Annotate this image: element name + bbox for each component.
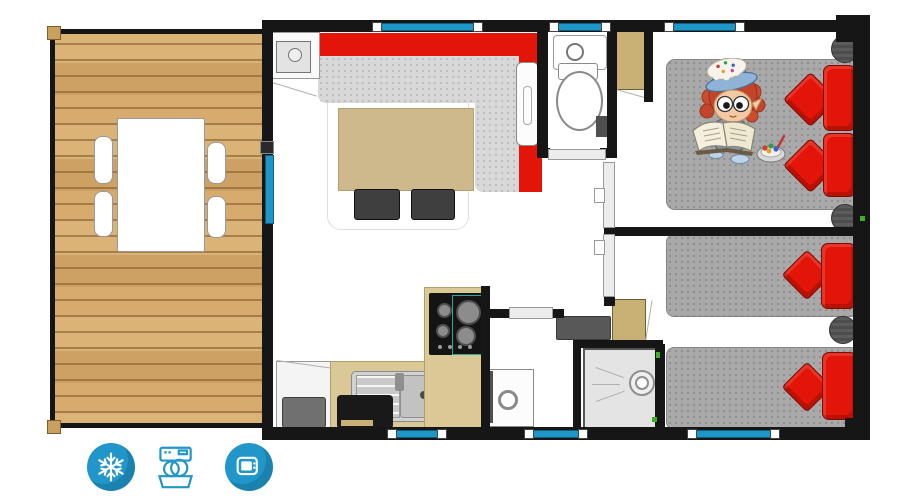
wall-niche-bedroom — [644, 20, 653, 102]
fitting-mark — [652, 417, 657, 422]
wall-right — [853, 20, 870, 440]
door-latch — [260, 141, 274, 154]
dishwasher-icon — [154, 442, 198, 492]
wall-bedroom-divider — [607, 227, 854, 236]
shower-drain-center — [635, 376, 649, 390]
burner — [456, 300, 481, 325]
burner — [437, 303, 452, 318]
pillow — [821, 243, 856, 309]
sink-faucet — [395, 373, 404, 391]
wall-shower-left — [573, 340, 581, 428]
chair — [94, 191, 113, 237]
window — [690, 430, 777, 438]
shower-spray-line — [592, 384, 620, 385]
chair — [207, 142, 226, 184]
floor-plan — [0, 0, 900, 500]
chair — [207, 196, 226, 238]
wall-living-wc — [537, 20, 548, 158]
window — [375, 23, 480, 31]
wall-radiator — [516, 62, 539, 146]
wall-left — [262, 20, 273, 440]
stool — [411, 189, 455, 220]
window — [527, 430, 585, 438]
wc-sliding-door — [548, 149, 606, 160]
corner-sofa-seat — [475, 56, 519, 192]
corner-sofa-back — [318, 33, 542, 56]
wall-corner-top-right — [836, 15, 870, 42]
bathroom-door — [509, 307, 553, 319]
terrace-frame-bottom — [50, 423, 265, 428]
wall-corner-bottom-right — [845, 418, 870, 440]
terrace-post — [47, 26, 61, 40]
chair — [94, 136, 113, 184]
vanity-faucet — [498, 390, 518, 410]
tv-icon — [232, 450, 266, 484]
corner-sofa-seat — [318, 56, 475, 103]
window — [552, 23, 608, 31]
pillow — [823, 65, 856, 131]
snowflake-icon — [94, 450, 128, 484]
coffee-table — [338, 108, 474, 191]
wall-wc-right — [607, 20, 617, 158]
wall-shower-top — [573, 340, 663, 348]
stool — [354, 189, 400, 220]
fitting-mark — [860, 216, 865, 221]
basin-faucet — [566, 43, 584, 61]
terrace-post — [47, 420, 61, 434]
terrace-glass-door — [265, 155, 274, 224]
burner — [436, 324, 450, 338]
cartoon-child-illustration — [683, 58, 789, 170]
door-handle — [594, 240, 605, 255]
cooktop-knobs — [438, 345, 442, 349]
door-handle — [594, 188, 605, 203]
pillow — [822, 352, 857, 420]
terrace-frame-left — [50, 29, 55, 428]
window — [667, 23, 742, 31]
dark-shelf — [556, 316, 611, 340]
terrace-frame-top — [50, 29, 265, 34]
window — [390, 430, 444, 438]
fitting-mark — [656, 352, 660, 358]
pillow — [823, 133, 856, 197]
storage-cabinet — [612, 299, 646, 346]
tv-badge — [225, 443, 273, 491]
radiator-slot — [523, 86, 532, 125]
appliance-tray — [341, 420, 373, 426]
burner — [456, 326, 476, 346]
appliance-dial — [288, 48, 302, 62]
air-conditioning-badge — [87, 443, 135, 491]
shoe — [731, 155, 749, 164]
fridge-front — [282, 397, 326, 428]
dining-table — [117, 118, 205, 252]
wall-kitchen-bath — [481, 286, 490, 428]
